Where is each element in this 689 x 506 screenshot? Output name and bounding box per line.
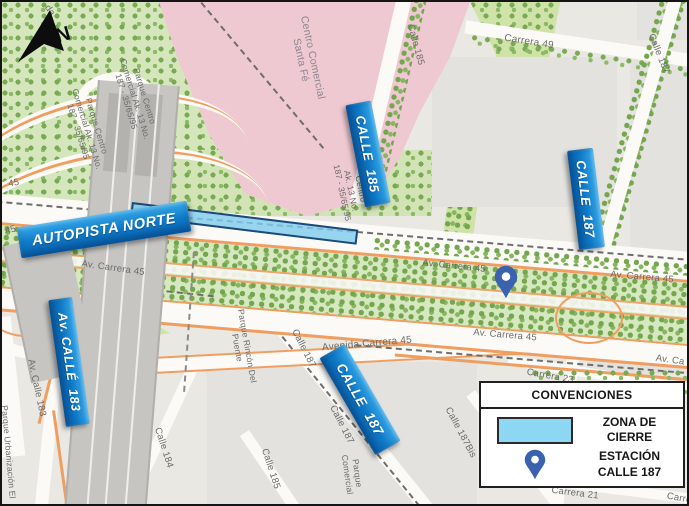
legend-title: CONVENCIONES (481, 383, 683, 409)
legend-item-label: ZONA DE CIERRE (582, 415, 677, 446)
legend-item-closure-zone: ZONA DE CIERRE (487, 415, 677, 446)
u-turn-ramp (555, 292, 623, 344)
street-label: Carre (666, 492, 689, 506)
street-label: 45 (8, 178, 21, 190)
station-pin-icon (523, 449, 547, 480)
map-canvas[interactable]: Calle 185 Carrera 49 Calle 187 Parque Ce… (0, 0, 689, 506)
legend-item-station: ESTACIÓN CALLE 187 (487, 449, 677, 480)
legend: CONVENCIONES ZONA DE CIERRE ESTACIÓN CAL… (479, 381, 685, 488)
legend-item-label: ESTACIÓN CALLE 187 (582, 449, 677, 480)
station-pin-marker[interactable] (493, 265, 519, 299)
closure-zone-swatch (497, 417, 573, 444)
